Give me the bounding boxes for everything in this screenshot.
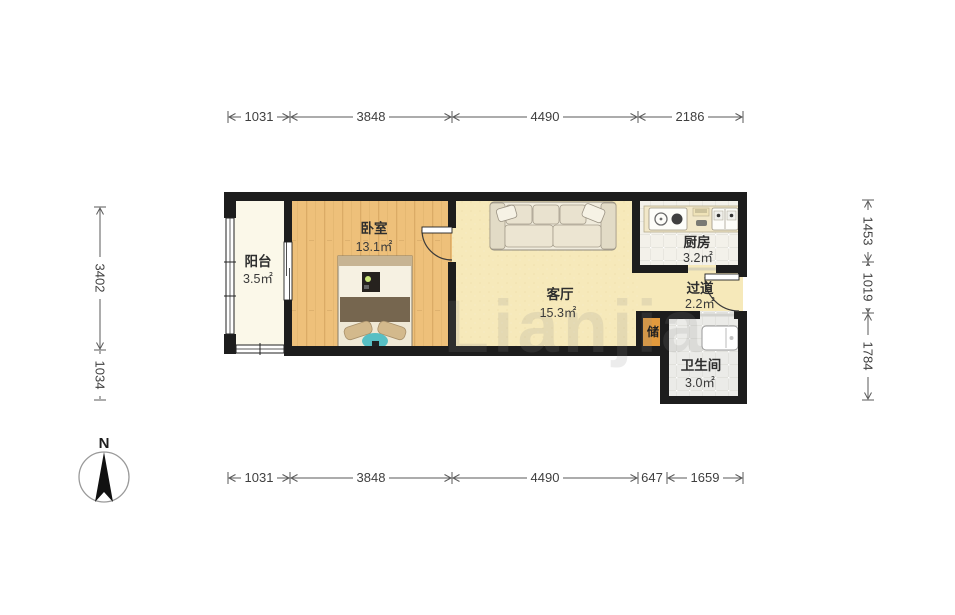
dim-right: 1453 1019 1784 xyxy=(861,200,876,400)
floor-plan-canvas: Lianjia 阳台 3.5㎡ 卧室 13.1㎡ 客厅 15.3㎡ 厨房 3.2… xyxy=(0,0,955,615)
living-label: 客厅 xyxy=(546,286,575,302)
dim-bottom-4: 1659 xyxy=(691,470,720,485)
balcony-window-left xyxy=(224,218,236,334)
bedroom-label: 卧室 xyxy=(361,220,388,236)
dim-top-0: 1031 xyxy=(245,109,274,124)
compass: N xyxy=(79,435,129,502)
dim-bottom-2: 4490 xyxy=(531,470,560,485)
dim-left: 3402 1034 xyxy=(93,207,108,400)
dim-left-0: 3402 xyxy=(93,264,108,293)
living-area: 15.3㎡ xyxy=(540,306,577,320)
bed-icon xyxy=(338,256,412,349)
hallway-area: 2.2㎡ xyxy=(685,297,715,311)
balcony-area: 3.5㎡ xyxy=(243,272,273,286)
dim-top-3: 2186 xyxy=(676,109,705,124)
watermark: Lianjia xyxy=(444,285,706,368)
kitchen-label: 厨房 xyxy=(684,234,711,250)
dim-left-1: 1034 xyxy=(93,361,108,390)
dim-bottom-3: 647 xyxy=(641,470,663,485)
washbasin-icon xyxy=(702,326,738,350)
north-arrow-icon xyxy=(95,452,113,502)
dim-right-0: 1453 xyxy=(861,217,876,246)
dim-bottom-1: 3848 xyxy=(357,470,386,485)
hallway-label: 过道 xyxy=(687,280,715,296)
bedroom-area: 13.1㎡ xyxy=(356,240,393,254)
bathroom-label: 卫生间 xyxy=(681,357,722,373)
storage-label: 储 xyxy=(647,324,659,339)
kitchen-counter-icon xyxy=(644,206,739,232)
dim-right-2: 1784 xyxy=(861,342,876,371)
dim-top: 1031 3848 4490 2186 xyxy=(228,109,743,124)
floorplan-page: Lianjia 阳台 3.5㎡ 卧室 13.1㎡ 客厅 15.3㎡ 厨房 3.2… xyxy=(0,0,955,615)
compass-north-label: N xyxy=(99,435,110,452)
balcony-sliding-door xyxy=(284,242,292,300)
sink-icon xyxy=(649,208,687,230)
dim-bottom: 1031 3848 4490 647 1659 xyxy=(228,470,743,485)
dim-right-1: 1019 xyxy=(861,273,876,302)
bathroom-area: 3.0㎡ xyxy=(685,376,715,390)
sofa-icon xyxy=(490,202,616,250)
dim-bottom-0: 1031 xyxy=(245,470,274,485)
dim-top-1: 3848 xyxy=(357,109,386,124)
kitchen-area: 3.2㎡ xyxy=(683,251,713,265)
balcony-label: 阳台 xyxy=(245,253,272,269)
stove-icon xyxy=(712,208,738,230)
dim-top-2: 4490 xyxy=(531,109,560,124)
balcony-window-bottom xyxy=(236,343,284,355)
